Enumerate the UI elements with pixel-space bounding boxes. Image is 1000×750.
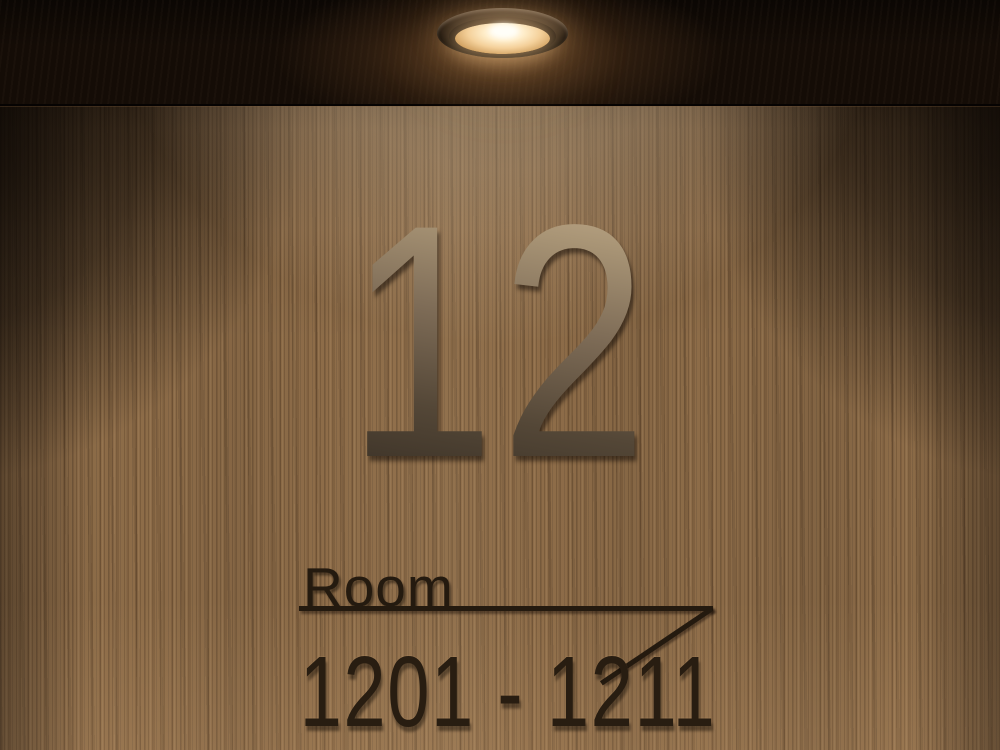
hotel-floor-sign-photo: 12 Room 1201 - 1211: [0, 0, 1000, 750]
room-range-block: 1201 - 1211: [128, 642, 888, 742]
floor-number: 12: [347, 176, 653, 508]
room-range: 1201 - 1211: [300, 642, 717, 742]
direction-baseline: [299, 606, 713, 611]
floor-number-block: 12: [100, 176, 900, 508]
downlight-hotspot: [489, 24, 519, 38]
